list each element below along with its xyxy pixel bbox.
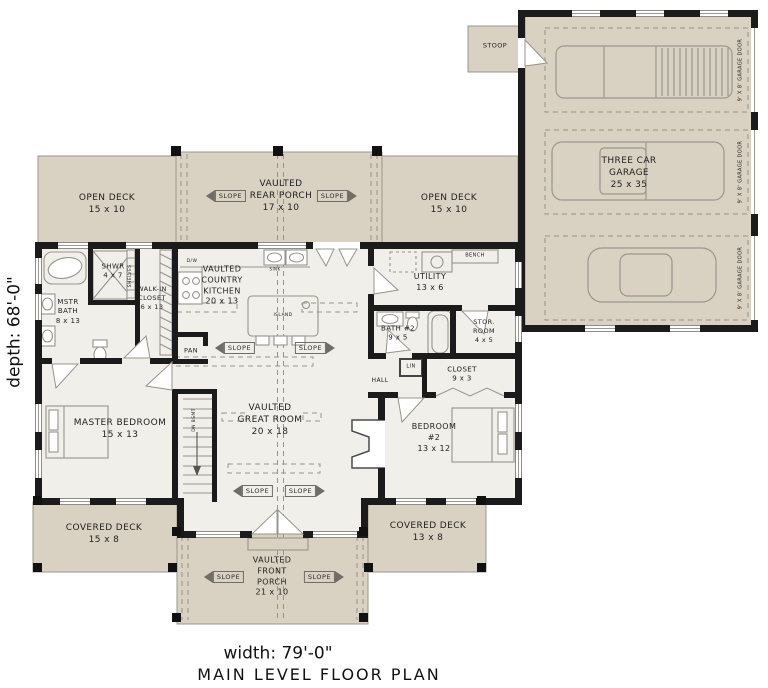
bath2-label: BATH #2 9 x 5 (381, 325, 415, 344)
covered-deck-right-label: COVERED DECK 13 x 8 (390, 520, 466, 544)
open-deck-left-label: OPEN DECK 15 x 10 (79, 192, 135, 216)
sink-label: SINK (270, 266, 281, 271)
hall-label: HALL (372, 377, 389, 385)
storage-room-label: STOR. ROOM 4 x 5 (473, 318, 495, 344)
slope-arrow-head-icon (326, 342, 335, 354)
slope-arrow-head-icon (348, 190, 357, 202)
bedroom2-label: BEDROOM #2 13 x 12 (412, 422, 457, 454)
slope-arrow: SLOPE (206, 190, 246, 202)
utility-label: UTILITY 13 x 6 (414, 272, 447, 294)
slope-arrow-head-icon (215, 342, 224, 354)
slope-arrow-label: SLOPE (242, 485, 273, 497)
garage-door-label: 9' X 8' GARAGE DOOR (738, 247, 745, 310)
shower-label: SHWR 4 x 7 (101, 263, 124, 282)
walk-in-closet-label: WALK-IN CLOSET 6 x 13 (137, 285, 167, 311)
master-bedroom-label: MASTER BEDROOM 15 x 13 (74, 417, 167, 441)
slope-arrow-label: SLOPE (215, 190, 246, 202)
covered-deck-left-label: COVERED DECK 15 x 8 (66, 522, 142, 546)
slope-arrow-head-icon (233, 485, 242, 497)
slope-arrow-label: SLOPE (304, 571, 335, 583)
floor-plan: STOOP THREE CAR GARAGE 25 x 35 9' X 8' G… (0, 0, 768, 688)
slope-arrow-head-icon (206, 190, 215, 202)
slope-arrow: SLOPE (295, 342, 335, 354)
garage-door-label: 9' X 8' GARAGE DOOR (738, 141, 745, 204)
depth-dimension: depth: 68'-0" (4, 276, 27, 388)
stairs-label: DN BSMT (192, 408, 198, 432)
garage-door-label: 9' X 8' GARAGE DOOR (738, 39, 745, 102)
slope-arrow: SLOPE (285, 485, 325, 497)
slope-arrow: SLOPE (204, 571, 244, 583)
kitchen-label: VAULTED COUNTRY KITCHEN 20 x 13 (201, 264, 242, 307)
slope-arrow-label: SLOPE (224, 342, 255, 354)
floor-plan-graphics (0, 0, 768, 688)
great-room-label: VAULTED GREAT ROOM 20 x 18 (238, 402, 303, 438)
page-title: MAIN LEVEL FLOOR PLAN (197, 664, 440, 686)
garage-label: THREE CAR GARAGE 25 x 35 (601, 155, 656, 191)
width-dimension: width: 79'-0" (223, 643, 332, 666)
slope-arrow-head-icon (335, 571, 344, 583)
linen-label: LIN (406, 364, 415, 371)
closet-label: CLOSET 9 x 3 (447, 366, 477, 385)
dishwasher-label: D/W (187, 259, 198, 265)
master-bath-label: MSTR BATH 8 x 13 (56, 298, 80, 326)
island-label: ISLAND (273, 313, 292, 319)
slope-arrow-label: SLOPE (295, 342, 326, 354)
slope-arrow-label: SLOPE (213, 571, 244, 583)
slope-arrow: SLOPE (233, 485, 273, 497)
open-deck-right-label: OPEN DECK 15 x 10 (421, 192, 477, 216)
front-porch-label: VAULTED FRONT PORCH 21 x 10 (253, 555, 292, 598)
slope-arrow-label: SLOPE (317, 190, 348, 202)
stoop-label: STOOP (483, 42, 507, 51)
slope-arrow-head-icon (316, 485, 325, 497)
pantry-label: PAN (184, 347, 198, 356)
slope-arrow-head-icon (204, 571, 213, 583)
shelves-label: SHELVES (128, 265, 134, 288)
bench-label: BENCH (465, 253, 485, 260)
slope-arrow-label: SLOPE (285, 485, 316, 497)
slope-arrow: SLOPE (317, 190, 357, 202)
rear-porch-label: VAULTED REAR PORCH 17 x 10 (250, 178, 313, 214)
slope-arrow: SLOPE (304, 571, 344, 583)
slope-arrow: SLOPE (215, 342, 255, 354)
